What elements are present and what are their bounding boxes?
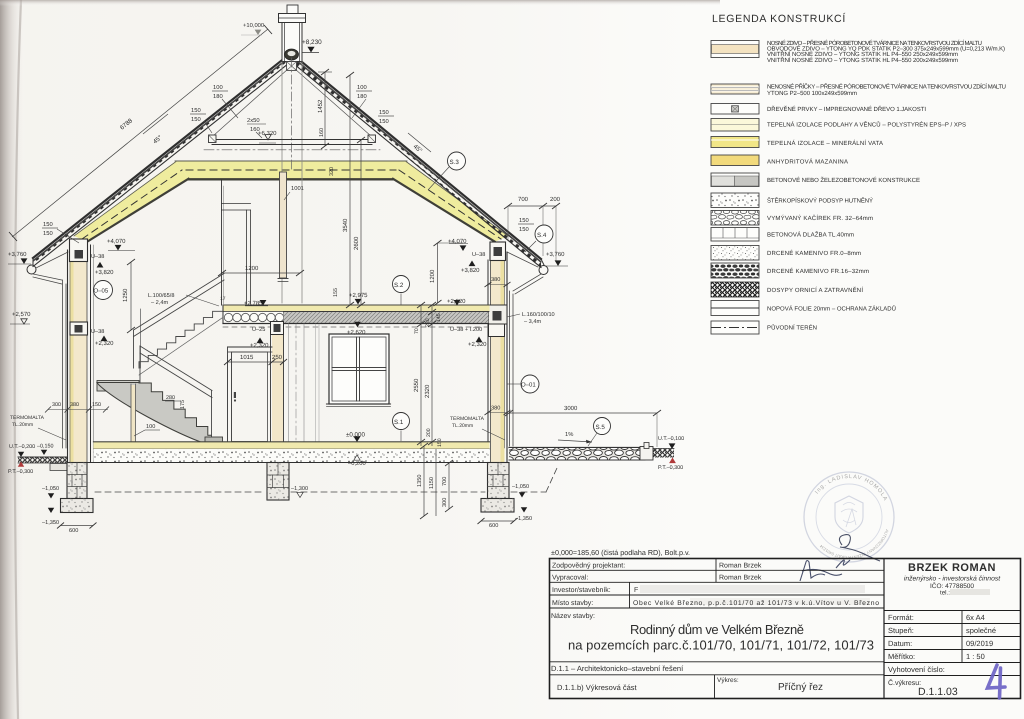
svg-text:NOPOVÁ FOLIE 20mm – OCHRANA ZÁ: NOPOVÁ FOLIE 20mm – OCHRANA ZÁKLADŮ (767, 305, 896, 313)
svg-text:–1,350: –1,350 (515, 516, 532, 522)
svg-text:150: 150 (519, 226, 529, 233)
svg-text:+10,000: +10,000 (243, 22, 264, 29)
svg-text:TERMOMALTA: TERMOMALTA (10, 415, 45, 421)
svg-text:S.2: S.2 (394, 282, 404, 289)
svg-text:U–38: U–38 (472, 252, 485, 258)
svg-text:320: 320 (329, 167, 335, 176)
svg-text:D.1.1 – Architektonicko–stav: D.1.1 – Architektonicko–stavební řešení (551, 664, 684, 673)
svg-text:BRZEK ROMAN: BRZEK ROMAN (908, 562, 996, 574)
svg-text:1452: 1452 (317, 99, 324, 113)
svg-text:160: 160 (319, 128, 325, 137)
svg-text:1200: 1200 (245, 265, 259, 272)
svg-text:inženýrsko - investorská činno: inženýrsko - investorská činnost (904, 576, 1001, 583)
svg-text:–1,050: –1,050 (512, 484, 529, 490)
svg-text:1200: 1200 (429, 269, 436, 283)
svg-text:150: 150 (43, 230, 53, 237)
svg-text:1%: 1% (565, 431, 573, 438)
svg-text:L.100/65/8: L.100/65/8 (148, 292, 174, 299)
svg-text:1015: 1015 (240, 354, 254, 361)
svg-text:U–38: U–38 (91, 254, 104, 260)
svg-text:–1,350: –1,350 (42, 520, 59, 526)
svg-text:+6,320: +6,320 (258, 130, 277, 137)
svg-text:společné: společné (966, 626, 996, 635)
svg-text:2320: 2320 (424, 384, 431, 398)
svg-text:380: 380 (491, 406, 500, 412)
svg-text:09/2019: 09/2019 (966, 639, 993, 648)
svg-text:BETONOVÉ NEBO ŽELEZOBETONOVÉ K: BETONOVÉ NEBO ŽELEZOBETONOVÉ KONSTRUKCE (767, 176, 920, 184)
svg-text:D.1.1.b) Výkresová část: D.1.1.b) Výkresová část (557, 683, 638, 692)
svg-text:Formát:: Formát: (888, 613, 914, 622)
svg-text:IČO: 47788500: IČO: 47788500 (930, 582, 974, 590)
svg-text:230: 230 (425, 318, 431, 327)
svg-text:DOSYPY ORNICÍ A ZATRAVNĚNÍ: DOSYPY ORNICÍ A ZATRAVNĚNÍ (767, 286, 863, 294)
svg-text:P.T.–0,300: P.T.–0,300 (8, 469, 33, 475)
svg-text:200: 200 (426, 428, 432, 437)
svg-text:Výkres:: Výkres: (717, 677, 739, 684)
svg-text:100: 100 (213, 84, 223, 91)
svg-text:TL.20mm: TL.20mm (12, 422, 33, 428)
svg-text:150: 150 (43, 221, 53, 228)
svg-text:U.T.–0,100: U.T.–0,100 (658, 436, 684, 442)
svg-text:–1,300: –1,300 (291, 486, 308, 492)
svg-text:TEPELNÁ IZOLACE – MINERÁLNÍ VA: TEPELNÁ IZOLACE – MINERÁLNÍ VATA (767, 139, 883, 147)
svg-text:–1,050: –1,050 (42, 486, 59, 492)
svg-text:O–01: O–01 (521, 382, 536, 389)
svg-text:180: 180 (213, 93, 223, 100)
svg-text:150: 150 (519, 217, 529, 224)
svg-text:150: 150 (191, 116, 201, 123)
svg-text:+8,230: +8,230 (302, 39, 322, 46)
svg-text:– 2,4m: – 2,4m (151, 300, 168, 306)
svg-text:LEGENDA KONSTRUKCÍ: LEGENDA KONSTRUKCÍ (712, 12, 846, 25)
svg-text:700: 700 (518, 196, 529, 203)
svg-text:+3,760: +3,760 (546, 251, 565, 258)
svg-text:175: 175 (180, 400, 186, 409)
svg-text:+2,620: +2,620 (347, 329, 366, 336)
svg-text:O–05: O–05 (94, 288, 109, 295)
svg-text:P.T.–0,300: P.T.–0,300 (658, 465, 683, 471)
svg-text:1001: 1001 (291, 185, 304, 192)
svg-text:100: 100 (146, 424, 155, 430)
svg-text:DRCENÉ KAMENIVO FR.0–8mm: DRCENÉ KAMENIVO FR.0–8mm (767, 249, 861, 257)
svg-text:TEPELNÁ IZOLACE PODLAHY A VĚNC: TEPELNÁ IZOLACE PODLAHY A VĚNCŮ – POLYST… (767, 121, 966, 129)
svg-text:700: 700 (442, 477, 448, 486)
svg-text:150: 150 (437, 438, 443, 447)
svg-text:TERMOMALTA: TERMOMALTA (450, 416, 485, 422)
svg-text:tel.:: tel.: (940, 590, 950, 597)
svg-text:U–38: U–38 (91, 329, 104, 335)
svg-text:600: 600 (489, 523, 498, 529)
svg-text:200: 200 (550, 196, 561, 203)
svg-text:1250: 1250 (122, 288, 129, 302)
svg-text:145: 145 (436, 313, 442, 322)
svg-text:150: 150 (379, 118, 389, 125)
svg-text:380: 380 (491, 277, 500, 283)
svg-text:600: 600 (69, 528, 78, 534)
svg-text:1350: 1350 (417, 475, 423, 487)
svg-text:S.4: S.4 (537, 232, 547, 239)
svg-text:155: 155 (333, 288, 339, 297)
svg-text:U–25: U–25 (252, 327, 265, 333)
svg-text:3540: 3540 (342, 218, 349, 232)
svg-text:150: 150 (379, 109, 389, 116)
svg-text:Měřítko:: Měřítko: (888, 652, 915, 661)
svg-text:Stupeň:: Stupeň: (888, 626, 914, 635)
svg-text:+4,070: +4,070 (448, 238, 467, 245)
svg-text:1 : 50: 1 : 50 (966, 652, 985, 661)
svg-text:2600: 2600 (353, 236, 360, 250)
svg-text:DŘEVĚNÉ PRVKY – IMPREGNOVANÉ D: DŘEVĚNÉ PRVKY – IMPREGNOVANÉ DŘEVO 1.JAK… (767, 105, 926, 113)
svg-text:TL.20mm: TL.20mm (452, 423, 473, 429)
svg-text:150: 150 (191, 107, 201, 114)
svg-text:180: 180 (357, 93, 367, 100)
svg-text:F: F (634, 587, 638, 594)
svg-text:3000: 3000 (564, 405, 578, 412)
svg-text:380: 380 (70, 402, 79, 408)
svg-text:VYMÝVANÝ KAČÍREK FR. 32–64mm: VYMÝVANÝ KAČÍREK FR. 32–64mm (767, 214, 873, 222)
svg-text:–0,150: –0,150 (37, 444, 54, 450)
svg-text:ŠTĚRKOPÍSKOVÝ PODSYP HUTNĚNÝ: ŠTĚRKOPÍSKOVÝ PODSYP HUTNĚNÝ (767, 197, 873, 205)
svg-text:PŮVODNÍ TERÉN: PŮVODNÍ TERÉN (767, 324, 817, 332)
svg-text:250: 250 (272, 354, 283, 361)
svg-text:U–38 + I.200: U–38 + I.200 (450, 327, 482, 333)
svg-text:VNITŘNÍ NOSNÉ ZDIVO – YTONG ST: VNITŘNÍ NOSNÉ ZDIVO – YTONG STATIK HL P4… (767, 56, 958, 64)
svg-text:YTONG P2–500 100x249x599mm: YTONG P2–500 100x249x599mm (767, 90, 857, 97)
svg-text:Investor/stavebník:: Investor/stavebník: (552, 586, 611, 594)
svg-text:Roman Brzek: Roman Brzek (719, 574, 762, 582)
svg-text:Č.výkresu:: Č.výkresu: (888, 678, 921, 687)
svg-text:+3,760: +3,760 (8, 251, 27, 258)
svg-text:Zodpovědný projektant:: Zodpovědný projektant: (552, 562, 625, 570)
svg-text:1150: 1150 (429, 477, 435, 489)
svg-text:Roman Brzek: Roman Brzek (719, 562, 762, 570)
svg-text:– 3,4m: – 3,4m (524, 319, 541, 325)
svg-text:S.5: S.5 (596, 424, 606, 431)
svg-text:+4,070: +4,070 (107, 238, 126, 245)
svg-text:150: 150 (92, 402, 101, 408)
svg-text:Vyhotovení číslo:: Vyhotovení číslo: (888, 665, 945, 674)
svg-text:L.160/100/10: L.160/100/10 (522, 311, 555, 318)
svg-text:100: 100 (357, 84, 367, 91)
svg-text:280: 280 (166, 395, 175, 401)
svg-text:300: 300 (442, 498, 448, 507)
svg-text:U.T.–0,200: U.T.–0,200 (9, 444, 35, 450)
svg-text:Příčný řez: Příčný řez (778, 682, 823, 693)
svg-text:S.1: S.1 (394, 419, 404, 426)
svg-text:+2,570: +2,570 (12, 311, 31, 318)
svg-text:6x A4: 6x A4 (966, 613, 985, 622)
svg-text:Místo stavby:: Místo stavby: (552, 599, 593, 607)
svg-text:70: 70 (414, 328, 420, 334)
svg-text:17: 17 (220, 296, 226, 302)
svg-text:Datum:: Datum: (888, 639, 912, 648)
svg-text:300: 300 (52, 402, 61, 408)
svg-text:Obec Velké Březno, p.p.č.101/7: Obec Velké Březno, p.p.č.101/70 až 101/7… (633, 600, 879, 607)
svg-text:+3,820: +3,820 (95, 269, 114, 276)
svg-text:D.1.1.03: D.1.1.03 (918, 686, 958, 698)
svg-text:ANHYDRITOVÁ MAZANINA: ANHYDRITOVÁ MAZANINA (767, 158, 848, 166)
svg-text:±0,000=185,60 (čistá podlaha: ±0,000=185,60 (čistá podlaha RD), Bolt.p… (551, 548, 690, 557)
svg-text:+2,975: +2,975 (349, 292, 368, 299)
svg-text:na pozemcích parc.č.101/70, 10: na pozemcích parc.č.101/70, 101/71, 101/… (568, 638, 874, 653)
svg-text:DRCENÉ KAMENIVO FR.16–32mm: DRCENÉ KAMENIVO FR.16–32mm (767, 267, 869, 275)
svg-text:2550: 2550 (413, 378, 420, 392)
svg-text:Rodinný dům ve Velkém Březně: Rodinný dům ve Velkém Březně (630, 622, 804, 637)
svg-text:NENOSNÉ PŘÍČKY – PŘESNÉ PÓROBE: NENOSNÉ PŘÍČKY – PŘESNÉ PÓROBETONOVÉ TVÁ… (767, 83, 1006, 91)
svg-text:2x50: 2x50 (247, 117, 260, 124)
svg-text:–0,200: –0,200 (348, 460, 366, 467)
svg-text:Název stavby:: Název stavby: (551, 612, 595, 620)
svg-text:S.3: S.3 (450, 159, 460, 166)
svg-text:Vypracoval:: Vypracoval: (552, 574, 588, 582)
svg-text:BETONOVÁ DLAŽBA TL.40mm: BETONOVÁ DLAŽBA TL.40mm (767, 231, 854, 239)
svg-text:+3,820: +3,820 (461, 267, 480, 274)
